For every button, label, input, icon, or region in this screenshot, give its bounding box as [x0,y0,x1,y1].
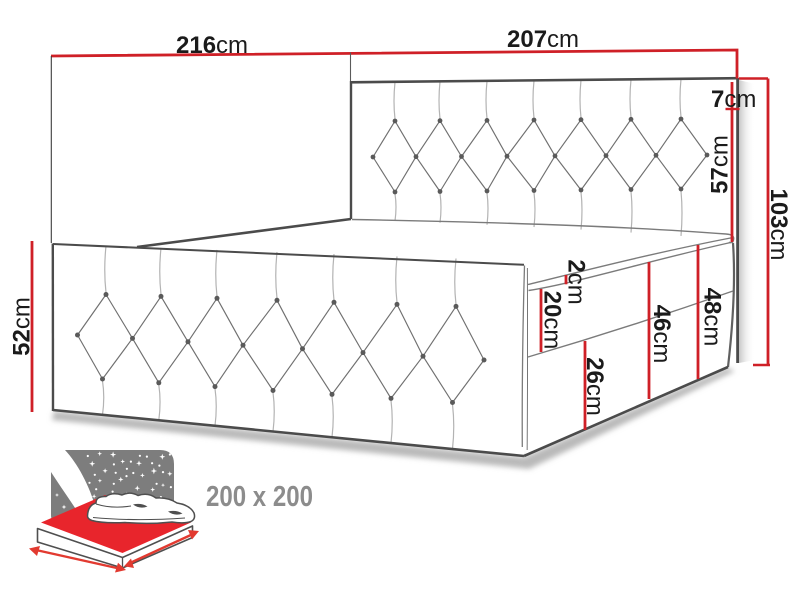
svg-text:52cm: 52cm [9,297,36,356]
svg-text:46cm: 46cm [648,305,675,364]
svg-text:200 x 200: 200 x 200 [206,481,313,513]
svg-text:207cm: 207cm [507,26,579,53]
svg-text:57cm: 57cm [707,135,734,194]
svg-text:26cm: 26cm [581,357,608,416]
svg-text:2cm: 2cm [563,259,590,304]
svg-text:216cm: 216cm [176,32,248,59]
svg-text:48cm: 48cm [699,288,726,347]
svg-text:20cm: 20cm [539,291,566,350]
svg-text:7cm: 7cm [711,86,756,113]
svg-text:103cm: 103cm [765,188,792,260]
